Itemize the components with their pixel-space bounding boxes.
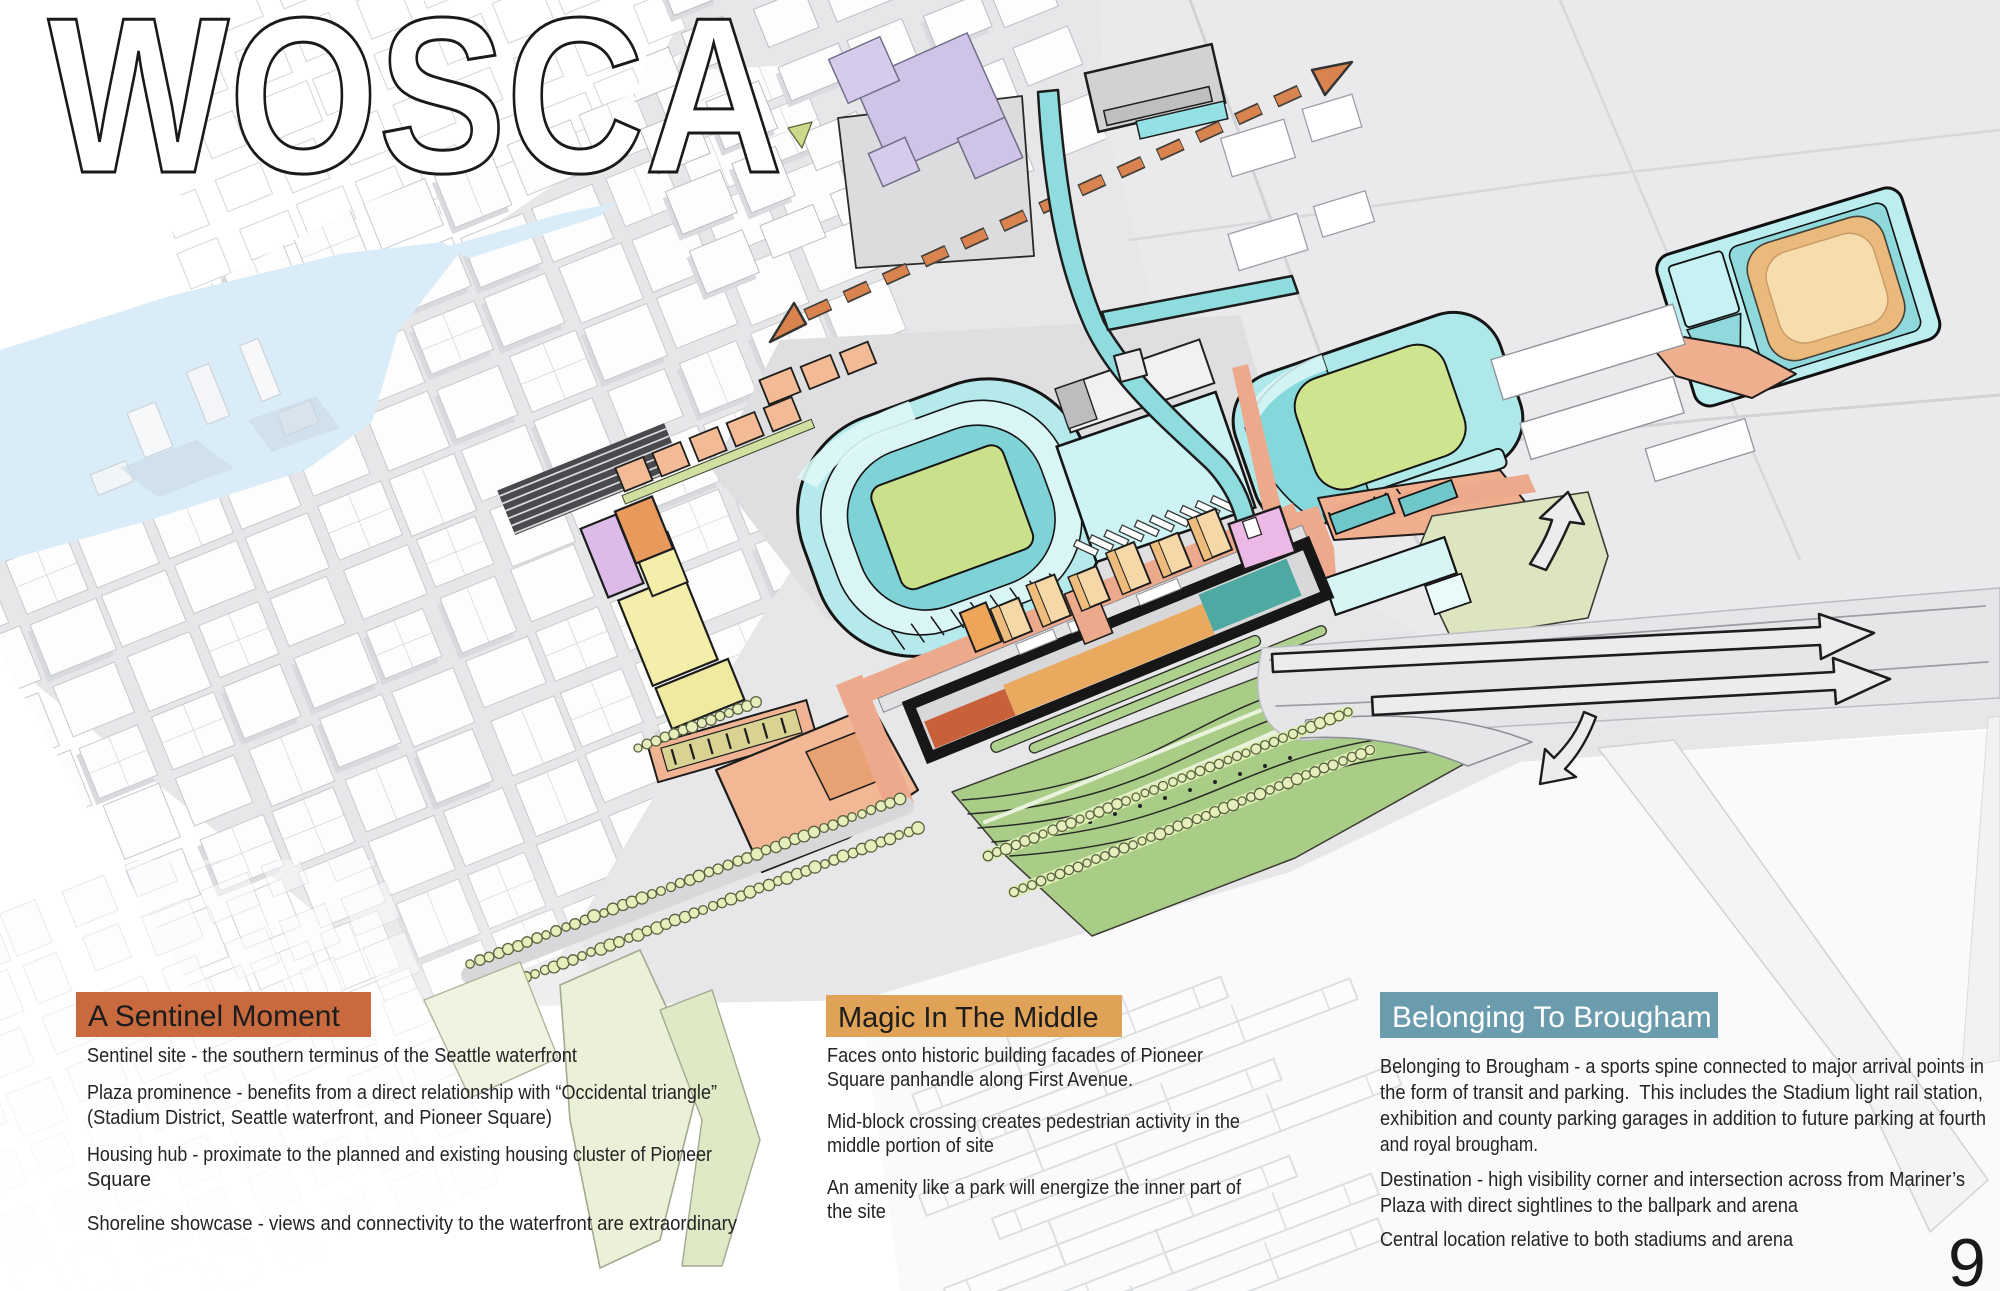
svg-text:Plaza with direct sightlines t: Plaza with direct sightlines to the ball… (1380, 1194, 1799, 1217)
svg-text:Square: Square (87, 1168, 151, 1191)
svg-text:Square panhandle along First A: Square panhandle along First Avenue. (827, 1068, 1133, 1091)
svg-text:Shoreline showcase - views and: Shoreline showcase - views and connectiv… (87, 1212, 738, 1235)
svg-text:Central location relative to b: Central location relative to both stadiu… (1380, 1228, 1794, 1251)
svg-text:Plaza prominence - benefits fr: Plaza prominence - benefits from a direc… (87, 1081, 717, 1104)
svg-text:A Sentinel Moment: A Sentinel Moment (88, 1000, 340, 1033)
svg-text:Belonging To Brougham: Belonging To Brougham (1392, 1001, 1712, 1034)
svg-text:Destination - high visibility: Destination - high visibility corner and… (1380, 1168, 1965, 1191)
svg-text:Magic In The Middle: Magic In The Middle (838, 1002, 1099, 1034)
svg-text:Mid-block crossing creates ped: Mid-block crossing creates pedestrian ac… (827, 1110, 1240, 1133)
svg-text:the site: the site (827, 1200, 886, 1223)
svg-text:(Stadium District, Seattle wat: (Stadium District, Seattle waterfront, a… (87, 1106, 552, 1129)
svg-text:Sentinel site - the southern t: Sentinel site - the southern terminus of… (87, 1044, 577, 1067)
svg-text:and royal brougham.: and royal brougham. (1380, 1133, 1538, 1156)
svg-text:Faces onto historic building f: Faces onto historic building facades of … (827, 1044, 1203, 1067)
svg-text:Housing hub - proximate to the: Housing hub - proximate to the planned a… (87, 1143, 712, 1166)
svg-text:middle portion of site: middle portion of site (827, 1134, 994, 1157)
svg-text:WOSCA: WOSCA (48, 0, 783, 220)
svg-text:Belonging to Brougham - a spor: Belonging to Brougham - a sports spine c… (1380, 1055, 1984, 1078)
svg-text:9: 9 (1948, 1225, 1986, 1291)
svg-text:An amenity like a park will en: An amenity like a park will energize the… (827, 1176, 1241, 1199)
svg-text:the form of transit and parkin: the form of transit and parking. This in… (1380, 1081, 1983, 1104)
svg-text:exhibition and county parking: exhibition and county parking garages in… (1380, 1107, 1986, 1130)
